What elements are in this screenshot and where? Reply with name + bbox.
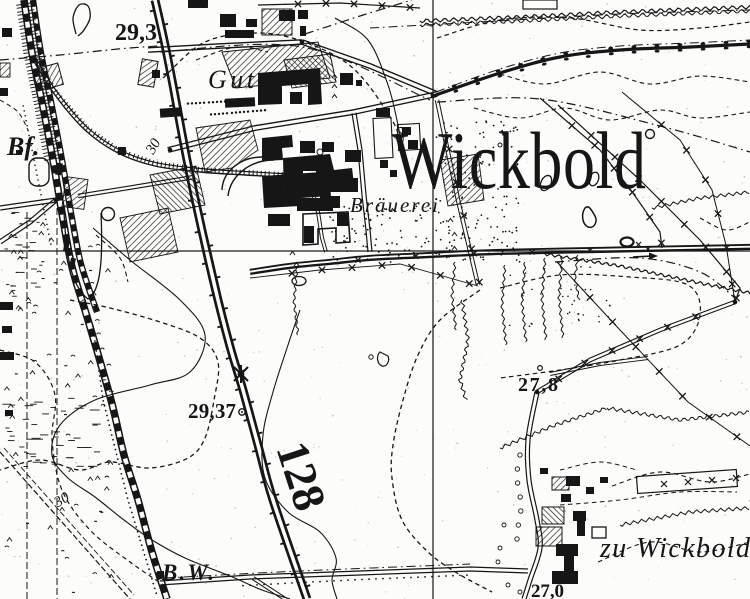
svg-text:27,0: 27,0 xyxy=(531,581,564,599)
svg-text:29,37: 29,37 xyxy=(188,399,236,423)
svg-text:Bf.: Bf. xyxy=(6,132,40,161)
svg-text:27,8: 27,8 xyxy=(518,374,558,396)
svg-text:zu Wickbold: zu Wickbold xyxy=(599,533,750,564)
svg-text:29,3: 29,3 xyxy=(115,20,157,46)
svg-text:B.W.: B.W. xyxy=(161,560,214,585)
svg-text:Gut: Gut xyxy=(208,65,255,94)
